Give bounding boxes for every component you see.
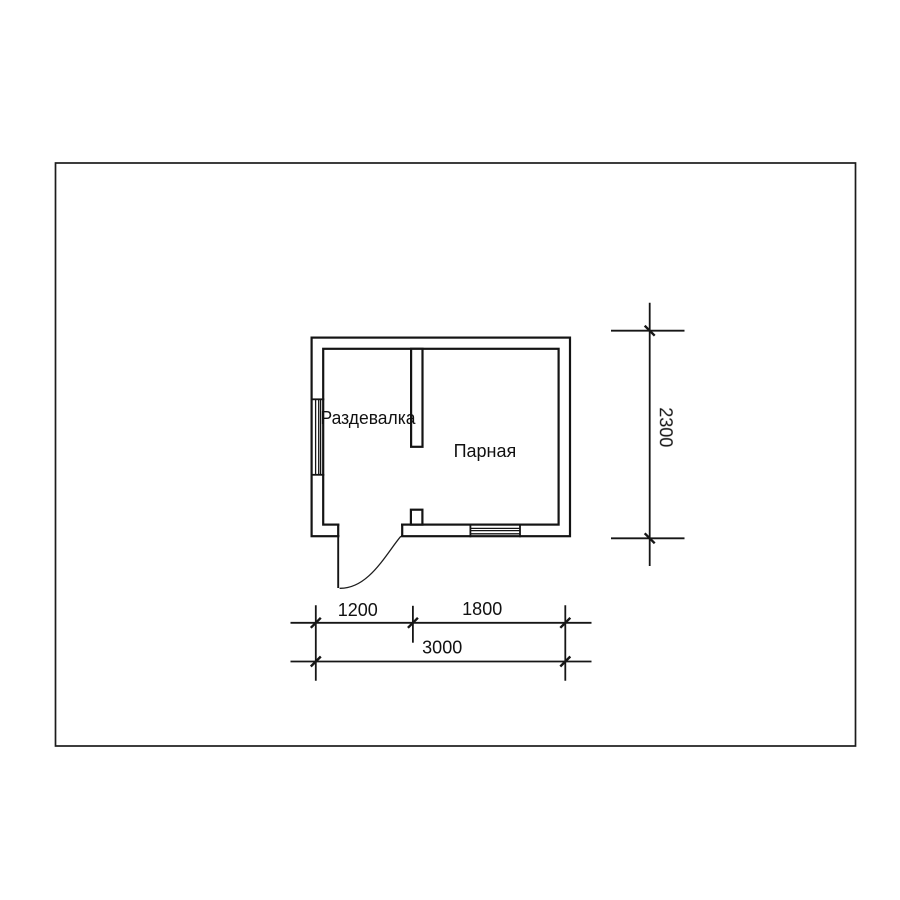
svg-text:2300: 2300 [656,407,676,447]
svg-text:1200: 1200 [338,600,378,620]
svg-text:Парная: Парная [454,441,517,461]
svg-text:Раздевалка: Раздевалка [321,408,417,428]
svg-text:1800: 1800 [462,599,502,619]
svg-text:3000: 3000 [422,638,462,658]
